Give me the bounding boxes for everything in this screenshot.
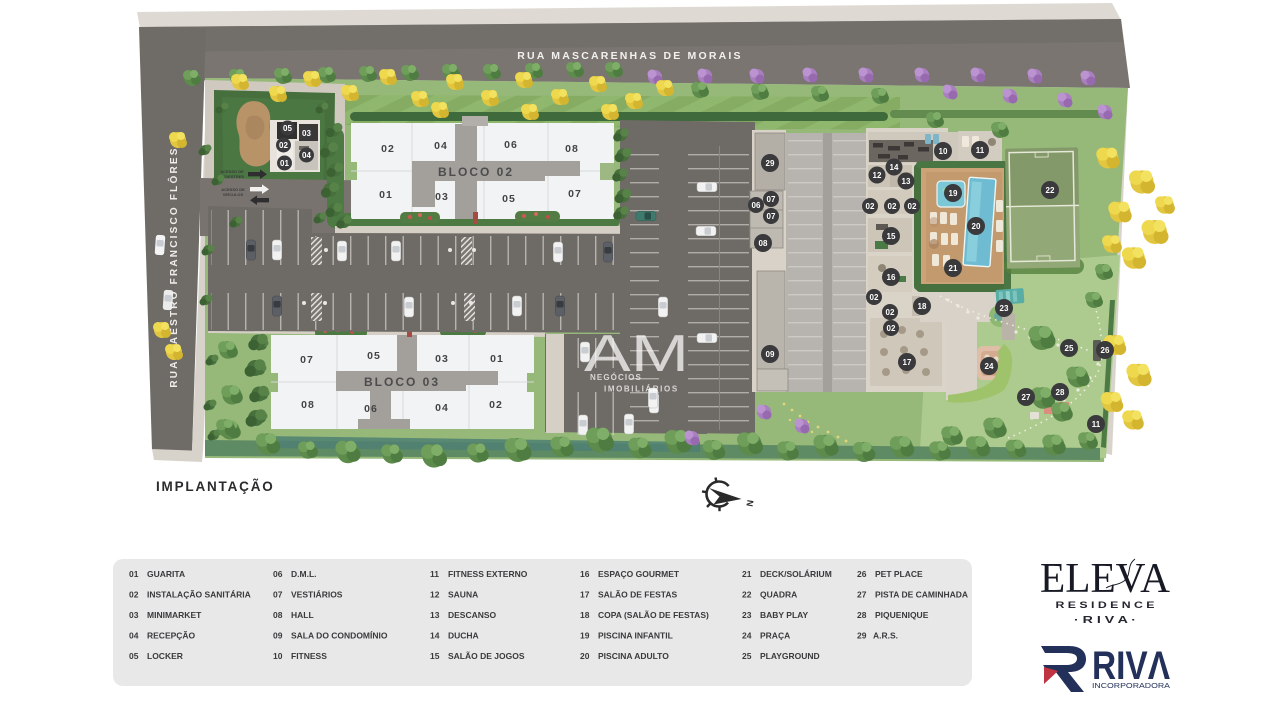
svg-text:ELEVA: ELEVA: [1040, 555, 1170, 602]
svg-text:R E S I D E N C E: R E S I D E N C E: [1056, 600, 1155, 610]
svg-text:29: 29: [766, 159, 775, 168]
svg-text:02: 02: [870, 293, 879, 302]
svg-text:MINIMARKET: MINIMARKET: [147, 610, 202, 620]
svg-text:04: 04: [434, 140, 448, 152]
svg-text:SAUNA: SAUNA: [448, 590, 478, 600]
svg-text:29: 29: [857, 631, 867, 641]
svg-text:DUCHA: DUCHA: [448, 631, 479, 641]
svg-text:05: 05: [129, 651, 139, 661]
svg-text:28: 28: [857, 610, 867, 620]
svg-text:09: 09: [273, 631, 283, 641]
svg-text:18: 18: [580, 610, 590, 620]
svg-text:13: 13: [902, 177, 911, 186]
svg-text:08: 08: [565, 143, 579, 155]
svg-text:04: 04: [302, 151, 311, 160]
svg-text:20: 20: [580, 651, 590, 661]
svg-text:03: 03: [435, 191, 449, 203]
svg-text:09: 09: [766, 350, 775, 359]
svg-text:PRAÇA: PRAÇA: [760, 631, 790, 641]
svg-text:PISCINA ADULTO: PISCINA ADULTO: [598, 651, 669, 661]
svg-text:DESCANSO: DESCANSO: [448, 610, 497, 620]
svg-text:A.R.S.: A.R.S.: [873, 631, 898, 641]
svg-text:D.M.L.: D.M.L.: [291, 569, 317, 579]
svg-text:26: 26: [1101, 346, 1110, 355]
svg-text:SALA DO CONDOMÍNIO: SALA DO CONDOMÍNIO: [291, 631, 388, 641]
svg-text:08: 08: [301, 399, 315, 411]
svg-text:RUA MASCARENHAS DE MORAIS: RUA MASCARENHAS DE MORAIS: [517, 50, 743, 62]
svg-text:BABY PLAY: BABY PLAY: [760, 610, 809, 620]
svg-text:LOCKER: LOCKER: [147, 651, 183, 661]
svg-text:COPA (SALÃO DE FESTAS): COPA (SALÃO DE FESTAS): [598, 610, 709, 620]
svg-text:PLAYGROUND: PLAYGROUND: [760, 651, 820, 661]
svg-text:20: 20: [972, 222, 981, 231]
svg-text:PIQUENIQUE: PIQUENIQUE: [875, 610, 929, 620]
svg-text:02: 02: [129, 590, 139, 600]
svg-text:01: 01: [490, 353, 504, 365]
svg-text:PISTA DE CAMINHADA: PISTA DE CAMINHADA: [875, 590, 968, 600]
svg-text:INSTALAÇÃO SANITÁRIA: INSTALAÇÃO SANITÁRIA: [147, 590, 251, 600]
svg-text:QUADRA: QUADRA: [760, 590, 797, 600]
svg-text:05: 05: [283, 124, 292, 133]
svg-text:21: 21: [742, 569, 752, 579]
svg-text:07: 07: [273, 590, 283, 600]
svg-text:16: 16: [580, 569, 590, 579]
svg-text:17: 17: [580, 590, 590, 600]
svg-text:24: 24: [742, 631, 752, 641]
svg-text:11: 11: [1092, 420, 1101, 429]
svg-text:01: 01: [129, 569, 139, 579]
svg-text:03: 03: [302, 129, 311, 138]
svg-text:07: 07: [767, 212, 776, 221]
svg-text:25: 25: [1065, 344, 1074, 353]
svg-text:16: 16: [887, 273, 896, 282]
svg-text:RECEPÇÃO: RECEPÇÃO: [147, 631, 196, 641]
svg-text:11: 11: [430, 569, 439, 579]
svg-text:07: 07: [300, 354, 314, 366]
svg-text:DECK/SOLÁRIUM: DECK/SOLÁRIUM: [760, 569, 832, 579]
svg-text:15: 15: [887, 232, 896, 241]
svg-text:PET PLACE: PET PLACE: [875, 569, 923, 579]
svg-text:02: 02: [489, 399, 503, 411]
svg-text:11: 11: [976, 146, 985, 155]
svg-text:22: 22: [1046, 186, 1055, 195]
svg-text:PISCINA INFANTIL: PISCINA INFANTIL: [598, 631, 673, 641]
svg-text:18: 18: [918, 302, 927, 311]
svg-text:02: 02: [908, 202, 917, 211]
svg-text:06: 06: [752, 201, 761, 210]
svg-text:12: 12: [873, 171, 882, 180]
svg-text:26: 26: [857, 569, 867, 579]
svg-text:15: 15: [430, 651, 440, 661]
svg-text:SALÃO DE FESTAS: SALÃO DE FESTAS: [598, 590, 678, 600]
svg-text:IMPLANTAÇÃO: IMPLANTAÇÃO: [156, 479, 275, 494]
svg-text:28: 28: [1056, 388, 1065, 397]
svg-text:VEÍCULOS: VEÍCULOS: [223, 192, 244, 197]
svg-text:02: 02: [888, 202, 897, 211]
svg-text:02: 02: [866, 202, 875, 211]
svg-text:19: 19: [580, 631, 590, 641]
svg-text:02: 02: [381, 143, 395, 155]
svg-text:27: 27: [1022, 393, 1031, 402]
svg-text:14: 14: [430, 631, 440, 641]
svg-text:SALÃO DE JOGOS: SALÃO DE JOGOS: [448, 651, 525, 661]
svg-text:17: 17: [903, 358, 912, 367]
svg-text:08: 08: [759, 239, 768, 248]
svg-text:13: 13: [430, 610, 440, 620]
svg-text:HALL: HALL: [291, 610, 314, 620]
svg-text:FITNESS: FITNESS: [291, 651, 327, 661]
svg-text:24: 24: [985, 362, 994, 371]
svg-text:01: 01: [379, 189, 393, 201]
svg-text:03: 03: [129, 610, 139, 620]
svg-text:22: 22: [742, 590, 752, 600]
svg-text:VESTIÁRIOS: VESTIÁRIOS: [291, 590, 343, 600]
svg-text:10: 10: [939, 147, 948, 156]
svg-text:FITNESS EXTERNO: FITNESS EXTERNO: [448, 569, 528, 579]
svg-text:05: 05: [502, 193, 516, 205]
svg-text:NEGÓCIOS: NEGÓCIOS: [590, 373, 642, 382]
svg-text:04: 04: [129, 631, 139, 641]
svg-text:12: 12: [430, 590, 440, 600]
svg-text:05: 05: [367, 350, 381, 362]
svg-text:19: 19: [949, 189, 958, 198]
svg-text:14: 14: [890, 163, 899, 172]
svg-text:10: 10: [273, 651, 283, 661]
svg-text:06: 06: [273, 569, 283, 579]
svg-text:07: 07: [767, 195, 776, 204]
svg-text:01: 01: [280, 159, 289, 168]
svg-text:02: 02: [279, 141, 288, 150]
svg-text:GUARITA: GUARITA: [147, 569, 185, 579]
svg-text:BLOCO 02: BLOCO 02: [438, 165, 514, 179]
svg-text:IMOBILIÁRIOS: IMOBILIÁRIOS: [604, 385, 679, 394]
svg-text:INCORPORADORA: INCORPORADORA: [1092, 681, 1170, 690]
svg-text:07: 07: [568, 188, 582, 200]
svg-text:· R I V A ·: · R I V A ·: [1074, 615, 1136, 626]
svg-text:02: 02: [887, 324, 896, 333]
svg-text:08: 08: [273, 610, 283, 620]
svg-text:02: 02: [886, 308, 895, 317]
svg-text:25: 25: [742, 651, 752, 661]
svg-text:03: 03: [435, 353, 449, 365]
svg-text:21: 21: [949, 264, 958, 273]
svg-text:23: 23: [1000, 304, 1009, 313]
svg-text:N: N: [744, 499, 755, 507]
svg-text:06: 06: [364, 403, 378, 415]
svg-text:ESPAÇO GOURMET: ESPAÇO GOURMET: [598, 569, 680, 579]
svg-text:23: 23: [742, 610, 752, 620]
svg-text:04: 04: [435, 402, 449, 414]
svg-text:06: 06: [504, 139, 518, 151]
svg-text:27: 27: [857, 590, 867, 600]
svg-text:BLOCO 03: BLOCO 03: [364, 375, 440, 389]
